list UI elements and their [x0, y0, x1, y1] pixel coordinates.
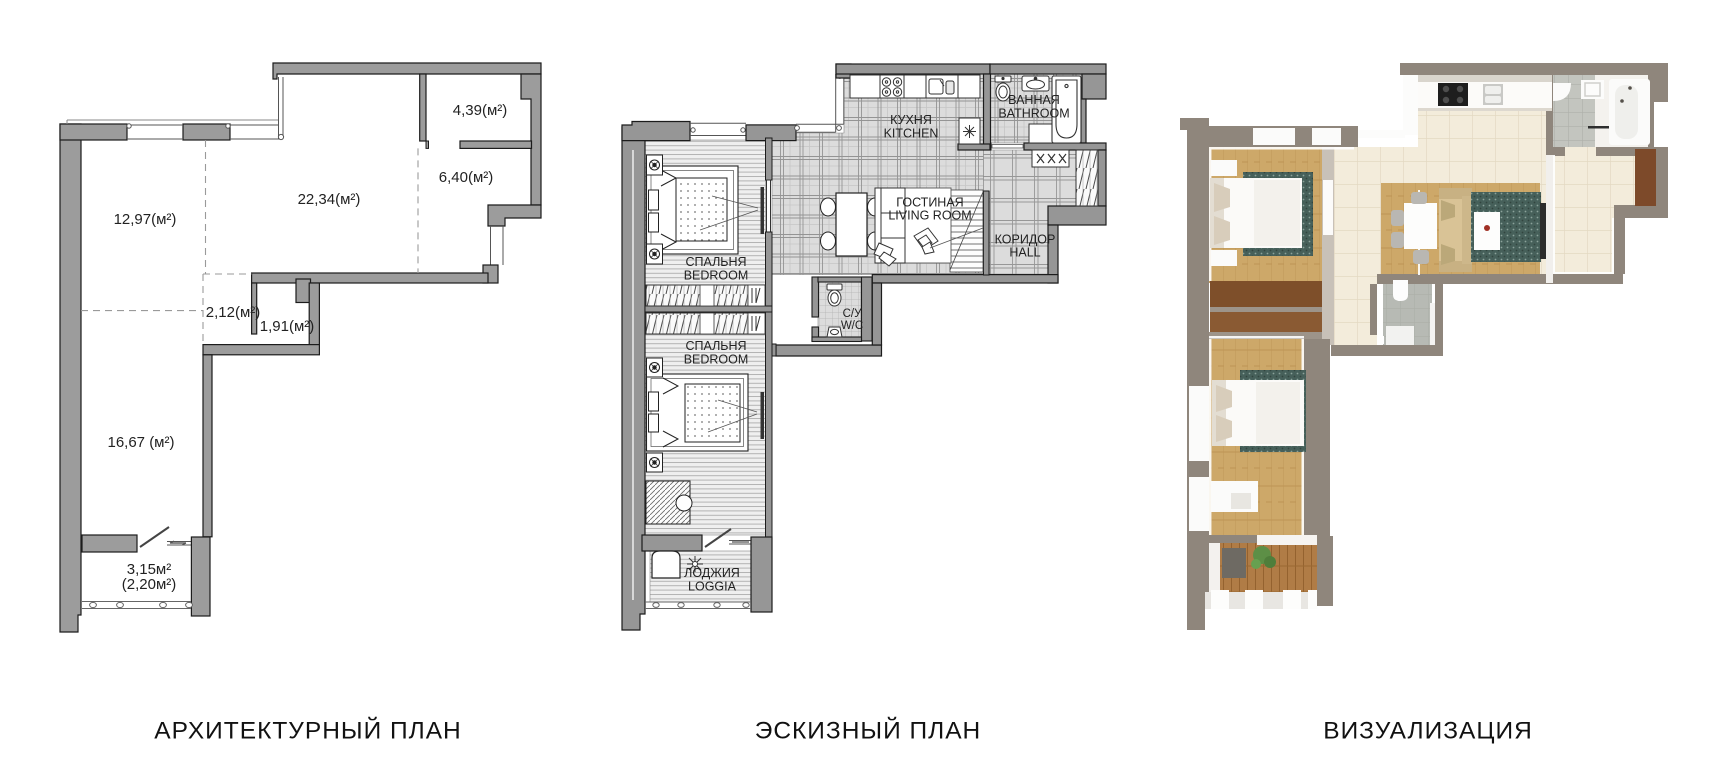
svg-text:6,40(м²): 6,40(м²)	[439, 169, 494, 186]
svg-text:КОРИДОР: КОРИДОР	[995, 233, 1056, 247]
svg-text:СПАЛЬНЯ: СПАЛЬНЯ	[685, 339, 746, 353]
svg-text:12,97(м²): 12,97(м²)	[114, 211, 177, 228]
svg-text:W/C: W/C	[841, 320, 863, 332]
svg-text:16,67 (м²): 16,67 (м²)	[107, 434, 174, 451]
svg-text:22,34(м²): 22,34(м²)	[298, 191, 361, 208]
svg-text:2,12(м²): 2,12(м²)	[206, 304, 261, 321]
svg-text:ЛОДЖИЯ: ЛОДЖИЯ	[684, 566, 740, 580]
svg-text:СПАЛЬНЯ: СПАЛЬНЯ	[685, 255, 746, 269]
svg-text:ГОСТИНАЯ: ГОСТИНАЯ	[896, 196, 963, 210]
svg-text:BATHROOM: BATHROOM	[998, 107, 1069, 121]
svg-text:4,39(м²): 4,39(м²)	[453, 102, 508, 119]
svg-text:LOGGIA: LOGGIA	[688, 580, 737, 594]
svg-text:BEDROOM: BEDROOM	[684, 353, 749, 367]
svg-text:LIVING ROOM: LIVING ROOM	[888, 209, 971, 223]
svg-text:С/У: С/У	[843, 308, 863, 320]
svg-text:ВИЗУАЛИЗАЦИЯ: ВИЗУАЛИЗАЦИЯ	[1323, 718, 1533, 745]
svg-text:HALL: HALL	[1009, 246, 1040, 260]
svg-text:ВАННАЯ: ВАННАЯ	[1008, 93, 1060, 107]
svg-text:КУХНЯ: КУХНЯ	[890, 113, 932, 127]
svg-text:ЭСКИЗНЫЙ ПЛАН: ЭСКИЗНЫЙ ПЛАН	[755, 717, 982, 745]
svg-text:АРХИТЕКТУРНЫЙ ПЛАН: АРХИТЕКТУРНЫЙ ПЛАН	[154, 717, 462, 745]
svg-text:KITCHEN: KITCHEN	[884, 127, 939, 141]
svg-text:(2,20м²): (2,20м²)	[122, 576, 177, 593]
svg-text:BEDROOM: BEDROOM	[684, 269, 749, 283]
svg-text:1,91(м²): 1,91(м²)	[260, 318, 315, 335]
